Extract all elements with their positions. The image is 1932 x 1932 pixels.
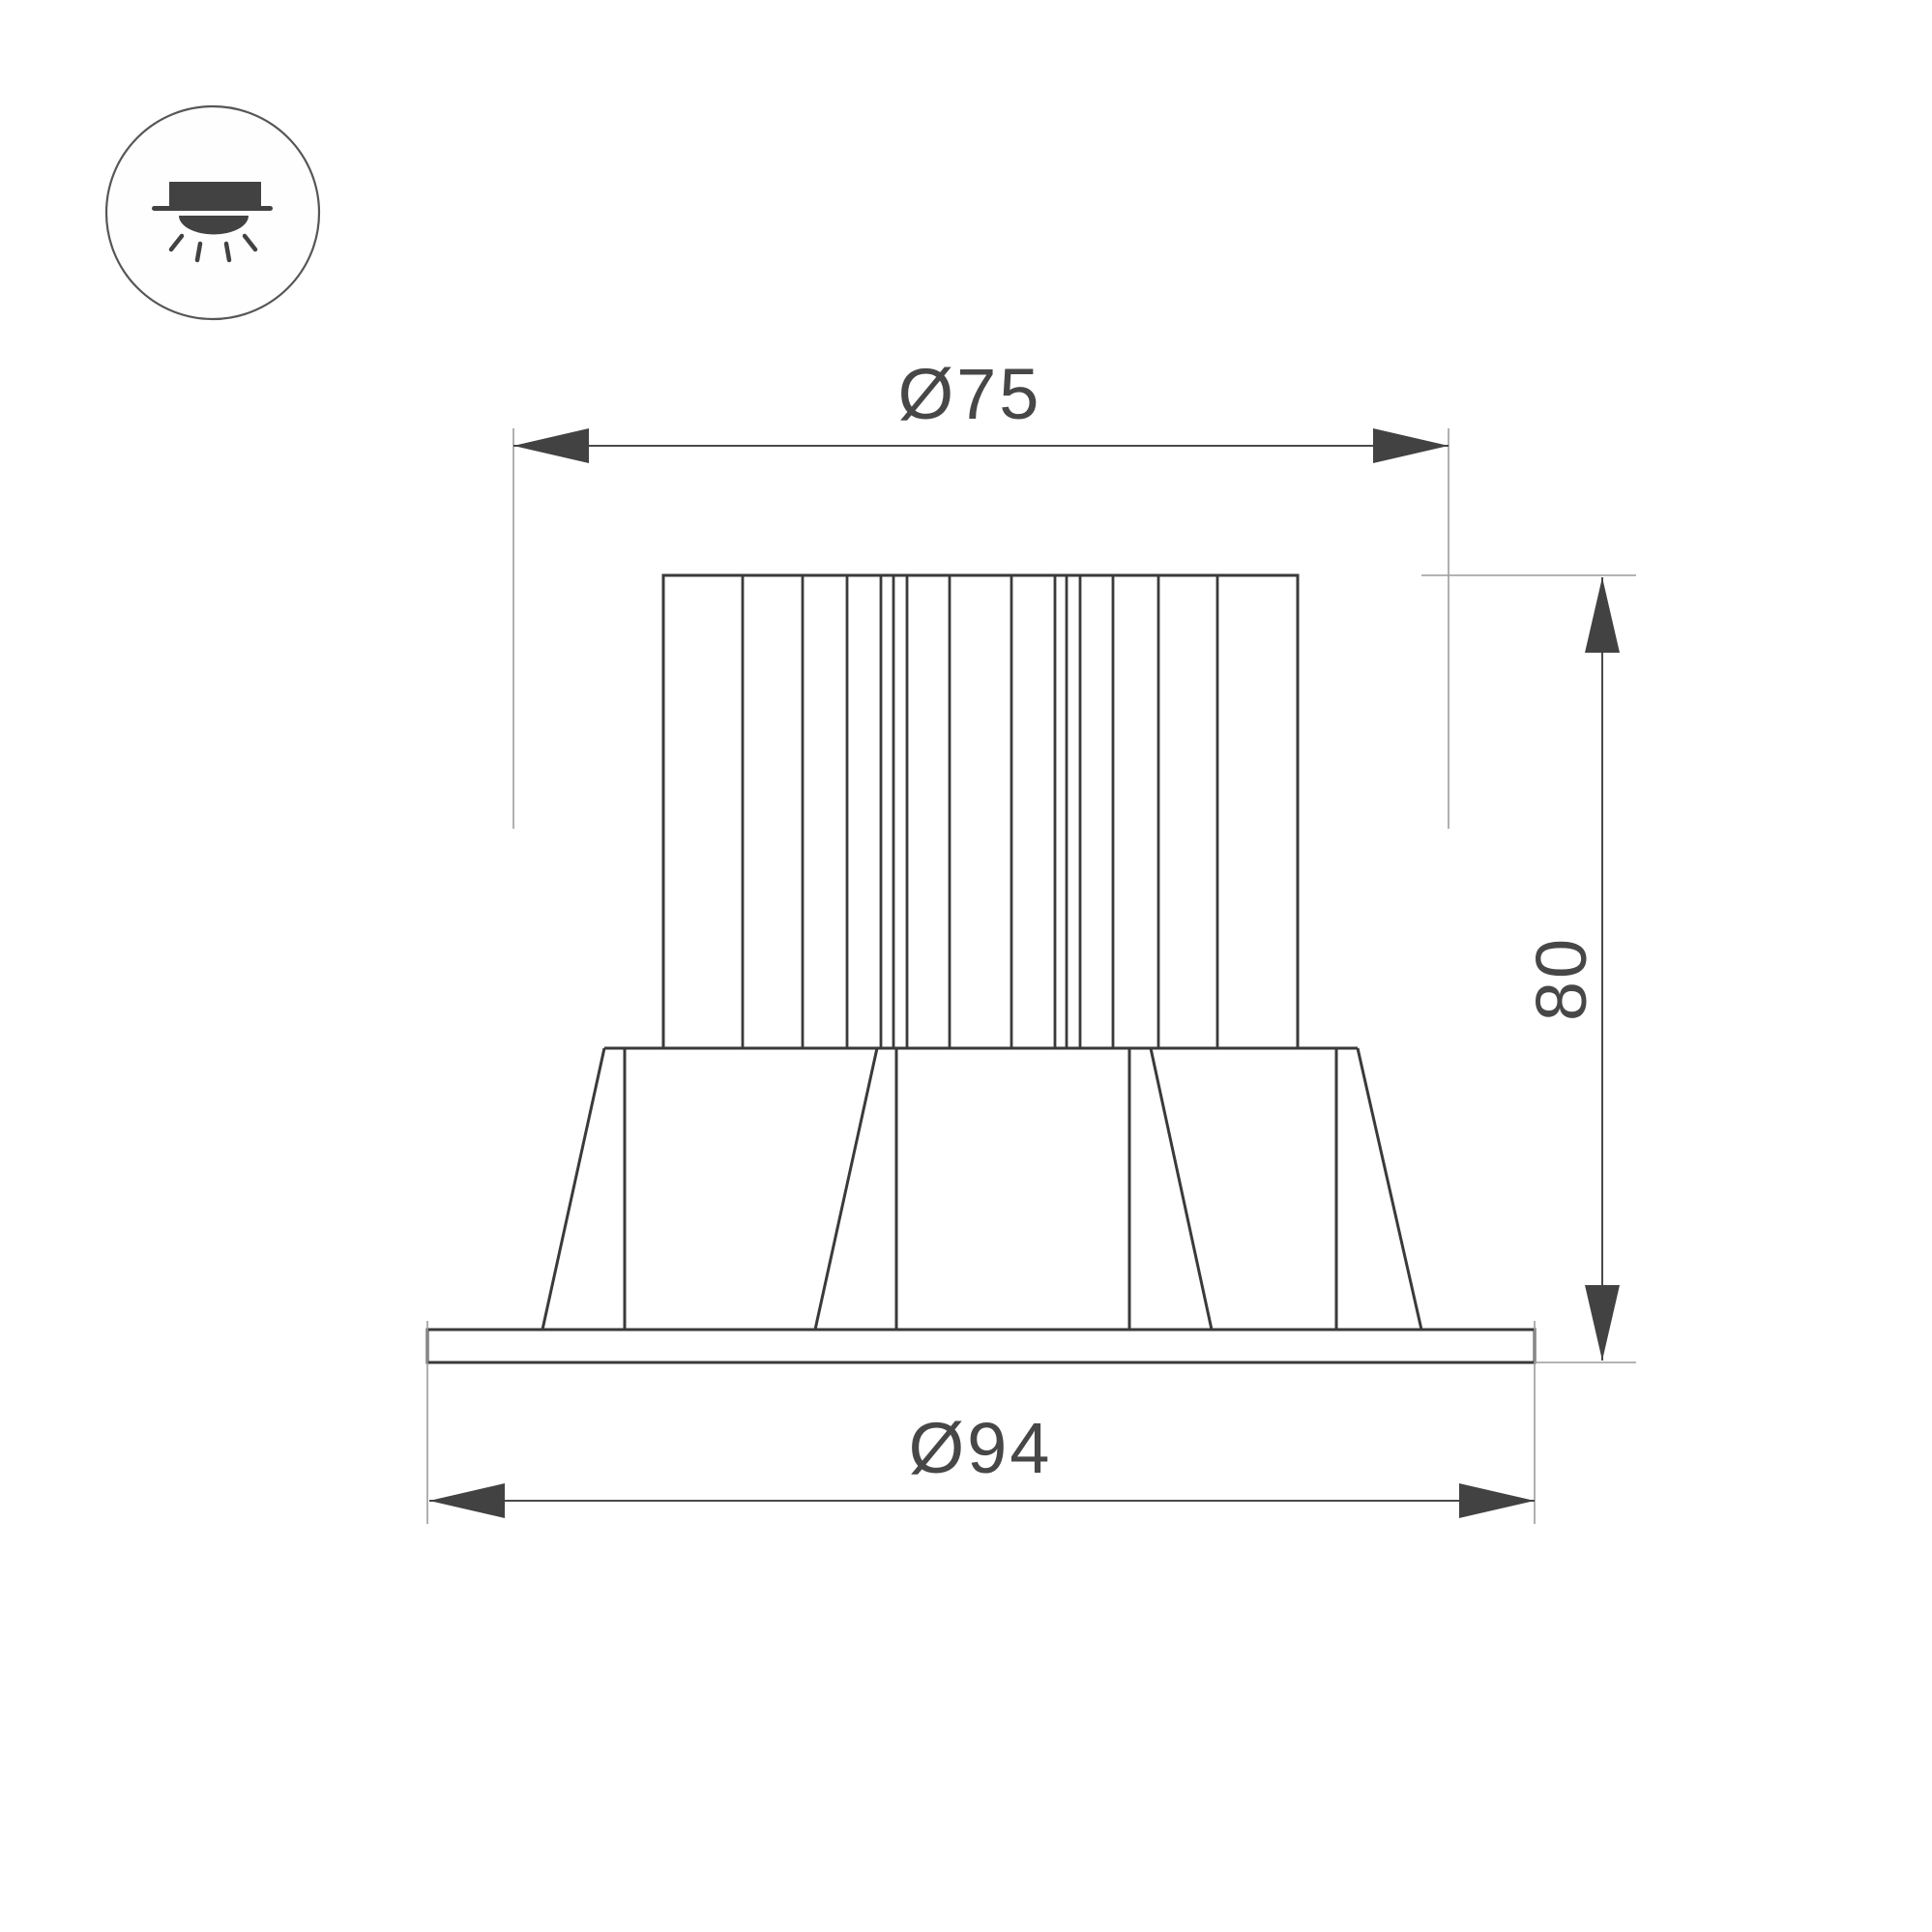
fin-block-outline — [663, 575, 1298, 1048]
dimension-label-bottom-diameter: Ø94 — [909, 1408, 1053, 1488]
dimension-bottom-diameter: Ø94 — [427, 1321, 1535, 1524]
arrowhead-bottom — [1585, 1285, 1620, 1361]
heatsink-fins — [663, 575, 1298, 1048]
dimension-label-height: 80 — [1521, 936, 1601, 1021]
dimension-height: 80 — [1421, 575, 1636, 1362]
icon-fixture-body — [169, 182, 261, 206]
icon-circle-outline — [106, 106, 319, 319]
technical-drawing: Ø75 80 Ø94 — [0, 0, 1932, 1932]
recessed-downlight-icon — [106, 106, 319, 319]
dimension-top-diameter: Ø75 — [513, 354, 1449, 829]
mounting-flange — [427, 1330, 1535, 1362]
dimension-label-top-diameter: Ø75 — [898, 354, 1042, 434]
drawing-canvas: Ø75 80 Ø94 — [0, 0, 1932, 1932]
fin-lines — [743, 575, 1217, 1048]
arrowhead-left — [513, 428, 589, 463]
body-left-outer-edge — [542, 1048, 604, 1330]
luminaire-body — [542, 1048, 1421, 1330]
arrowhead-right — [1373, 428, 1449, 463]
arrowhead-right — [1459, 1483, 1535, 1518]
body-right-outer-edge — [1358, 1048, 1421, 1330]
icon-ceiling-line — [152, 206, 273, 211]
arrowhead-top — [1585, 577, 1620, 653]
arrowhead-left — [429, 1483, 505, 1518]
